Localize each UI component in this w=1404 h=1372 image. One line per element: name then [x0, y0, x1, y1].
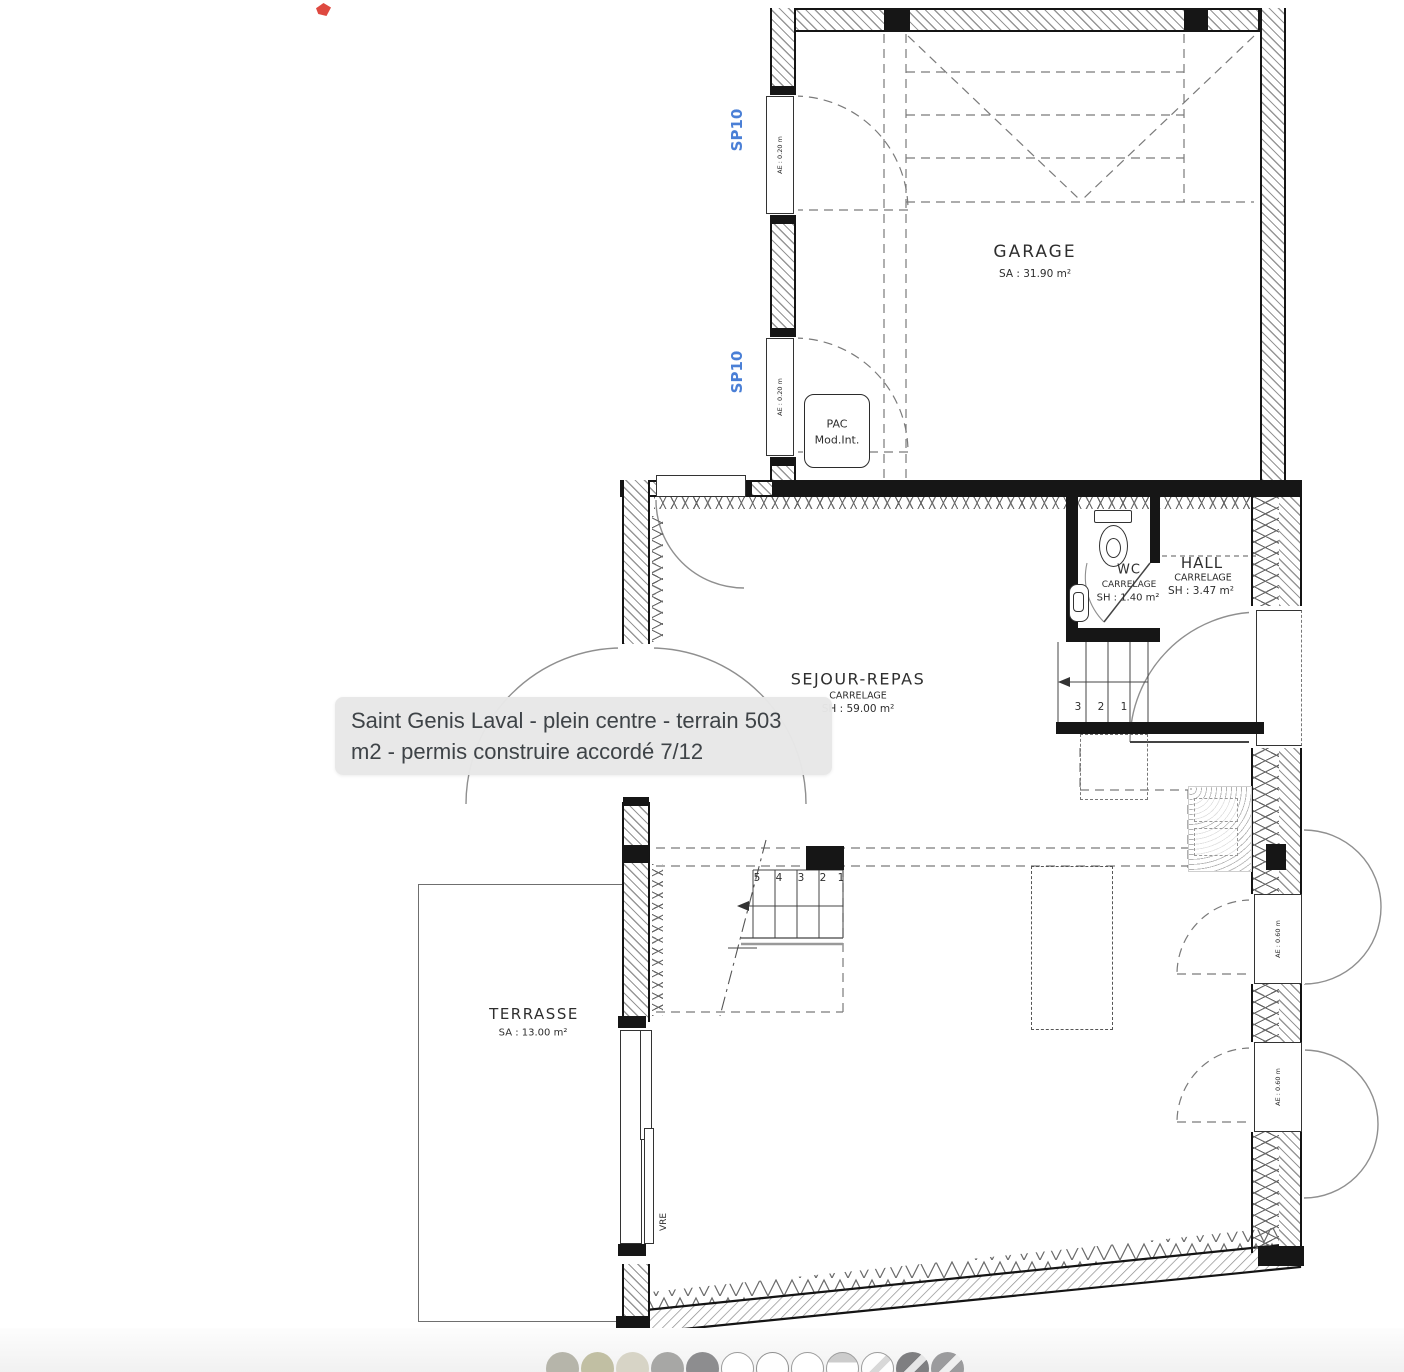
bay-window-leaf	[640, 1030, 652, 1140]
pac-unit-box	[804, 394, 870, 468]
hall-room-floor: CARRELAGE	[1174, 573, 1232, 584]
bay-window-frame	[620, 1030, 642, 1244]
stair-number: 5	[754, 872, 761, 884]
stair-number: 1	[838, 872, 845, 884]
garage-room-area: SA : 31.90 m²	[999, 268, 1071, 280]
caption-line-1: Saint Genis Laval - plein centre - terra…	[351, 705, 816, 736]
garage-right-wall	[1260, 8, 1286, 480]
wall-block	[884, 8, 910, 32]
hall-room-area: SH : 3.47 m²	[1168, 585, 1234, 597]
wall-block	[770, 86, 796, 95]
sp10-label: SP10	[728, 109, 746, 152]
terrasse-room-area: SA : 13.00 m²	[499, 1028, 568, 1039]
stair-number: 4	[776, 872, 783, 884]
wall-block	[1184, 8, 1208, 32]
wall-block	[770, 457, 796, 466]
wall-window-block	[1266, 844, 1286, 870]
wall-block	[618, 1244, 646, 1256]
hall-room-name: HALL	[1181, 554, 1223, 572]
wc-room-floor: CARRELAGE	[1102, 580, 1157, 590]
photo-caption-tooltip: Saint Genis Laval - plein centre - terra…	[335, 697, 832, 775]
terrasse-room-name: TERRASSE	[489, 1005, 579, 1023]
sejour-room-area: SH : 59.00 m²	[822, 703, 895, 715]
wall-corner-block	[1258, 1246, 1304, 1266]
pac-label-1: PAC	[827, 418, 848, 431]
toilet-bowl-inner	[1106, 538, 1121, 558]
stair-landing-block	[806, 846, 844, 870]
hall-bottom-wall	[1056, 722, 1264, 734]
stair-number: 2	[1098, 701, 1105, 713]
stair-number: 3	[798, 872, 805, 884]
window-size-label: AE : 0.60 m	[1274, 1068, 1282, 1106]
door-size-label: AE : 0.20 m	[776, 136, 784, 174]
wall-block	[770, 328, 796, 337]
door-size-label: AE : 0.20 m	[776, 378, 784, 416]
wc-room-name: WC	[1117, 563, 1141, 578]
interior-door-leaf	[656, 475, 746, 497]
insulation-band	[652, 516, 663, 642]
garage-top-wall	[770, 8, 1286, 32]
stair-void-dashed	[1080, 734, 1148, 800]
sejour-room-floor: CARRELAGE	[829, 691, 887, 702]
wc-bottom-wall	[1066, 628, 1160, 642]
garage-room-name: GARAGE	[993, 242, 1076, 262]
wall-block	[618, 1016, 646, 1028]
sejour-top-wall	[772, 480, 1302, 497]
wc-room-area: SH : 1.40 m²	[1097, 593, 1160, 604]
toilet-tank	[1094, 510, 1132, 523]
plan-linework	[0, 0, 1404, 1372]
stair-number: 2	[820, 872, 827, 884]
wall-block	[623, 845, 649, 863]
wall-block	[770, 215, 796, 224]
kitchen-sink	[1194, 798, 1238, 822]
pac-label-2: Mod.Int.	[815, 434, 860, 447]
insulation-band	[652, 864, 663, 1016]
caption-line-2: m2 - permis construire accordé 7/12	[351, 736, 816, 767]
sejour-top-wall	[752, 480, 772, 497]
wc-sink-basin	[1073, 592, 1084, 612]
bay-window-leaf	[644, 1128, 654, 1244]
kitchen-appliance	[1194, 828, 1238, 856]
wall-block	[623, 797, 649, 806]
stair-number: 1	[1121, 701, 1128, 713]
insulation-band	[654, 497, 1254, 509]
wc-right-wall	[1150, 497, 1160, 563]
listing-photo-viewer: GARAGE SA : 31.90 m² PAC Mod.Int. SP10 S…	[0, 0, 1404, 1372]
sejour-room-name: SEJOUR-REPAS	[791, 670, 925, 689]
window-size-label: AE : 0.60 m	[1274, 920, 1282, 958]
stair-number: 3	[1075, 701, 1082, 713]
kitchen-island-dashed	[1031, 866, 1113, 1030]
sp10-label: SP10	[728, 351, 746, 394]
bay-window-label: VRE	[659, 1213, 669, 1231]
